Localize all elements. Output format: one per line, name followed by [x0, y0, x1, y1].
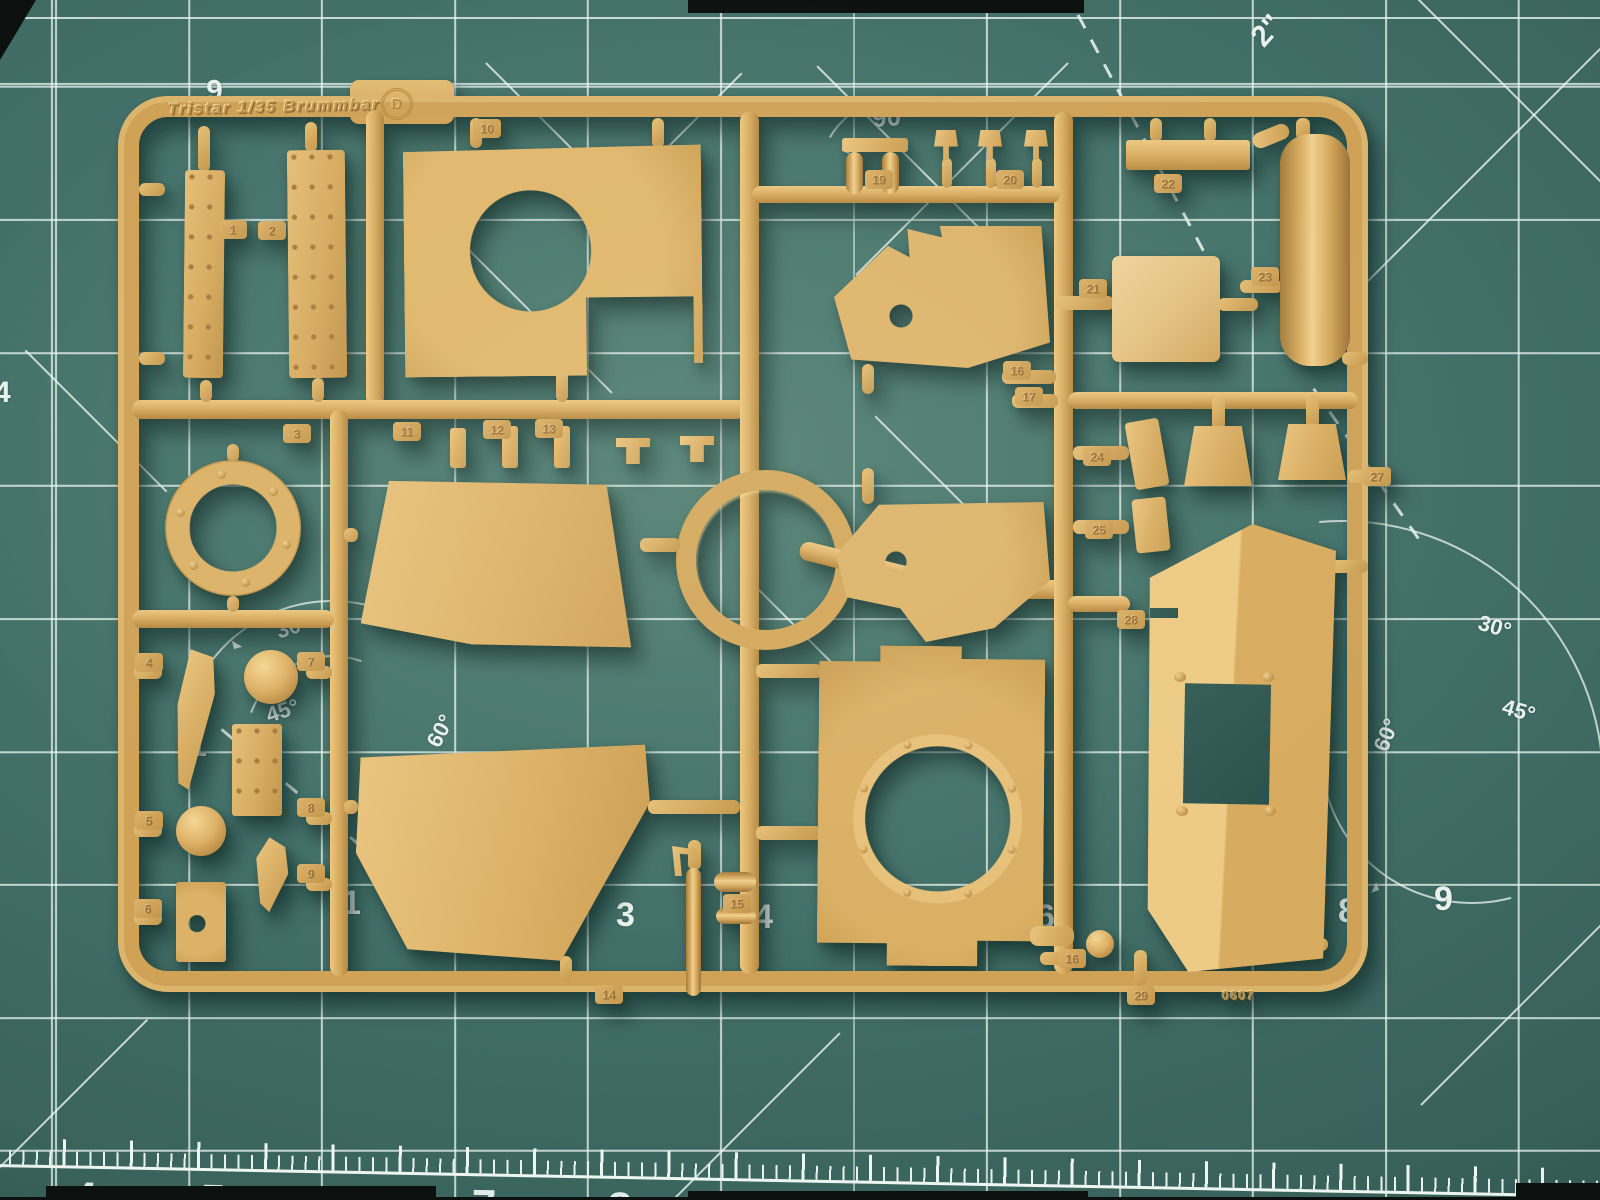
runner-left-horizontal: [132, 400, 746, 419]
part-number-tag: 16: [1003, 361, 1031, 380]
sprue-gate-stub: [227, 596, 239, 612]
bolt-dot: [176, 508, 185, 517]
part-cylinder-15: [714, 872, 756, 892]
sprue-gate-stub: [1134, 950, 1147, 986]
photo-stage: 62"9030°45°60°30°45°60°11346894 45678 Tr…: [0, 0, 1600, 1200]
part-armor-strip-2: [287, 150, 347, 379]
part-number-tag: 12: [483, 420, 511, 439]
part-ball: [1086, 930, 1114, 958]
sprue-gate-stub: [305, 122, 317, 152]
deck-slot: [1150, 608, 1178, 618]
sprue-gate-stub: [942, 158, 952, 188]
sprue-gate-stub: [648, 800, 740, 814]
hinge-bump: [1264, 806, 1276, 816]
part-plate-8: [232, 724, 282, 816]
part-dome-5: [176, 806, 226, 856]
part-trapezoid-block: [1278, 424, 1346, 480]
part-number-tag: 25: [1085, 520, 1113, 539]
part-number-tag: 29: [1127, 986, 1155, 1005]
part-cylinder-23: [1280, 134, 1350, 366]
bolt-dot: [269, 487, 278, 496]
sprue-gate-stub: [986, 158, 996, 188]
part-number-tag: 15: [723, 894, 751, 913]
part-number-tag: 17: [1015, 387, 1043, 406]
sprue-gate-stub: [1056, 296, 1114, 310]
runner-ring-bottom: [132, 610, 334, 628]
part-number-tag: 4: [135, 653, 163, 672]
sprue-gate-stub: [1032, 158, 1042, 188]
part-number-tag: 28: [1117, 610, 1145, 629]
part-number-tag: 27: [1363, 467, 1391, 486]
sprue-gate-stub: [139, 352, 165, 365]
part-number-tag: 13: [535, 419, 563, 438]
sprue-gate-stub: [652, 118, 664, 148]
part-gun-mantlet-plate: [817, 645, 1046, 967]
sprue-gate-stub: [560, 956, 572, 982]
sprue-gate-stub: [862, 364, 874, 394]
part-block-25: [1131, 496, 1170, 553]
part-number-tag: 5: [135, 811, 163, 830]
bolt-dot: [965, 741, 973, 749]
sprue-gate-stub: [312, 378, 324, 402]
sprue-gate-stub: [1212, 396, 1225, 430]
part-number-tag: 3: [283, 424, 311, 443]
bolt-dot: [964, 889, 972, 897]
hinge-bump: [1176, 806, 1188, 816]
part-peg: [1030, 926, 1074, 946]
sprue-d: Tristar 1/35 Brummbar D: [0, 0, 1600, 1200]
part-ring-3: [165, 460, 301, 596]
part-number-tag: 11: [393, 422, 421, 441]
part-plate-6: [176, 882, 226, 962]
part-hatch-plate-21: [1112, 256, 1220, 362]
part-number-tag: 14: [595, 985, 623, 1004]
part-rod-14: [686, 868, 701, 996]
part-number-tag: 6: [134, 899, 162, 918]
part-number-tag: 1: [219, 220, 247, 239]
mold-code: 0607: [1222, 988, 1255, 1003]
part-number-tag: 8: [297, 798, 325, 817]
sprue-gate-stub: [756, 664, 822, 678]
part-number-tag: 9: [297, 864, 325, 883]
deck-hatch-opening: [1183, 683, 1271, 804]
part-number-tag: 20: [996, 170, 1024, 189]
bolt-dot: [903, 889, 911, 897]
bolt-dot: [241, 578, 250, 587]
bolt-dot: [860, 845, 868, 853]
part-dome-7: [244, 650, 298, 704]
sprue-gate-stub: [1330, 560, 1368, 573]
bolt-dot: [189, 561, 198, 570]
sprue-gate-stub: [1342, 352, 1368, 365]
bolt-dot: [860, 784, 868, 792]
sprue-gate-stub: [139, 183, 165, 196]
runner-topleft-vertical: [366, 110, 384, 406]
part-number-tag: 2: [258, 221, 286, 240]
part-trapezoid-block: [1184, 426, 1252, 486]
part-number-tag: 24: [1083, 447, 1111, 466]
part-number-tag: 7: [297, 652, 325, 671]
runner-left-vertical: [330, 410, 348, 976]
part-small-cylinder: [846, 152, 863, 194]
part-strip-22: [1126, 140, 1250, 170]
sprue-gate-stub: [344, 800, 358, 814]
sprue-gate-stub: [1204, 118, 1216, 142]
part-armor-strip-1: [183, 170, 225, 378]
sprue-gate-stub: [1150, 118, 1162, 142]
sprue-letter-badge: D: [381, 88, 413, 120]
sprue-gate-stub: [200, 380, 212, 402]
sprue-gate-stub: [756, 826, 822, 840]
sprue-gate-stub: [688, 840, 701, 870]
part-number-tag: 22: [1154, 174, 1182, 193]
part-number-tag: 10: [473, 119, 501, 138]
part-number-tag: 21: [1079, 279, 1107, 298]
part-bracket-19: [842, 138, 908, 152]
sprue-gate-stub: [640, 538, 680, 552]
part-number-tag: 23: [1251, 267, 1279, 286]
bolt-dot: [1008, 785, 1016, 793]
sprue-gate-stub: [198, 126, 210, 172]
part-number-tag: 19: [865, 170, 893, 189]
bolt-dot: [904, 741, 912, 749]
part-small-bracket: [450, 428, 466, 468]
bolt-dot: [1008, 846, 1016, 854]
bolt-dot: [282, 540, 291, 549]
bolt-dot: [217, 470, 226, 479]
part-engine-deck-panel: [1122, 524, 1336, 972]
sprue-gate-stub: [344, 528, 358, 542]
sprue-gate-stub: [1306, 394, 1319, 428]
runner-right-vertical: [1054, 112, 1073, 974]
sprue-gate-stub: [862, 468, 874, 504]
sprue-gate-stub: [1218, 298, 1258, 311]
hinge-bump: [1174, 672, 1186, 682]
part-number-tag: 16: [1058, 949, 1086, 968]
hinge-bump: [1262, 672, 1274, 682]
